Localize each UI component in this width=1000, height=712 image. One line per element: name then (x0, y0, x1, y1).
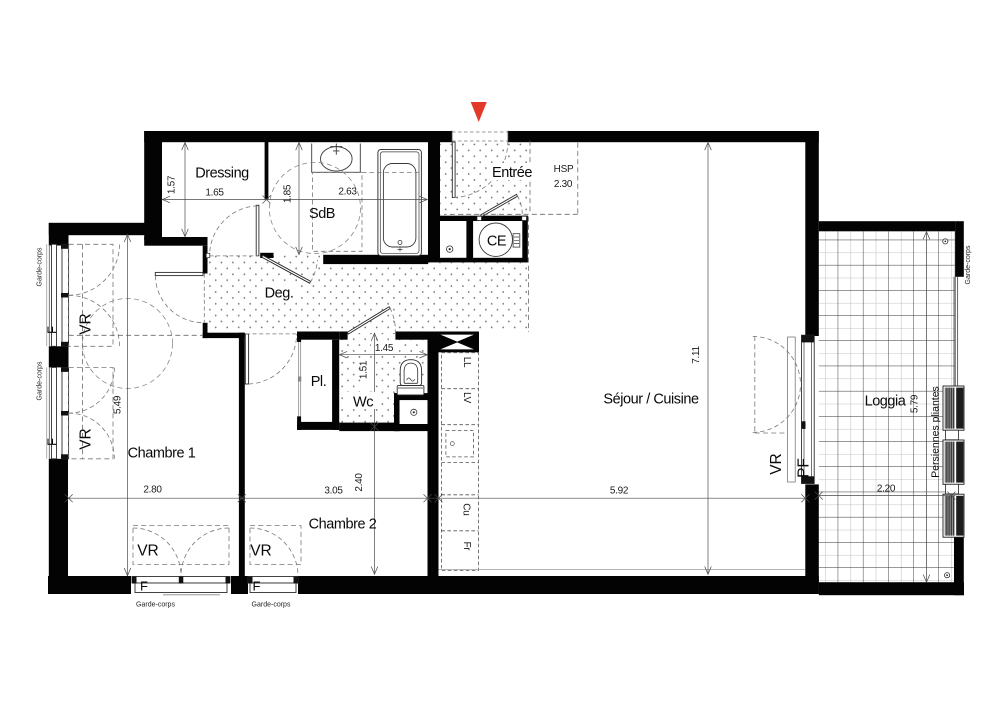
svg-text:Garde-corps: Garde-corps (37, 247, 44, 286)
svg-text:1.57: 1.57 (166, 175, 177, 194)
svg-text:Garde-corps: Garde-corps (136, 602, 175, 609)
svg-text:Garde-corps: Garde-corps (37, 361, 44, 400)
svg-text:2.20: 2.20 (877, 484, 896, 495)
svg-text:1.51: 1.51 (359, 360, 370, 379)
svg-text:Séjour / Cuisine: Séjour / Cuisine (603, 392, 699, 408)
svg-text:F: F (45, 326, 60, 334)
svg-text:Garde-corps: Garde-corps (965, 245, 972, 284)
svg-text:Entrée: Entrée (492, 165, 532, 181)
svg-text:1.45: 1.45 (375, 343, 394, 354)
svg-text:1.85: 1.85 (283, 184, 294, 203)
svg-text:7.11: 7.11 (691, 346, 702, 364)
svg-text:2.80: 2.80 (143, 485, 162, 496)
svg-text:VR: VR (250, 543, 272, 560)
svg-text:CE: CE (487, 233, 507, 249)
svg-text:Fr: Fr (461, 541, 472, 551)
svg-text:Pl.: Pl. (311, 374, 327, 390)
svg-text:5.49: 5.49 (112, 395, 123, 414)
svg-text:LL: LL (461, 357, 472, 368)
svg-text:Dressing: Dressing (195, 166, 249, 182)
svg-text:2.30: 2.30 (554, 179, 573, 190)
svg-text:Cu: Cu (460, 503, 471, 515)
svg-text:SdB: SdB (309, 206, 335, 222)
svg-text:2.40: 2.40 (354, 473, 365, 492)
svg-text:PF: PF (796, 458, 813, 478)
svg-text:Wc: Wc (353, 395, 373, 411)
svg-text:Chambre 2: Chambre 2 (309, 517, 377, 533)
svg-text:Persiennes pliantes: Persiennes pliantes (930, 386, 942, 478)
svg-text:Chambre 1: Chambre 1 (128, 446, 196, 462)
svg-text:5.79: 5.79 (910, 394, 921, 413)
svg-text:VR: VR (768, 453, 785, 475)
svg-text:VR: VR (78, 313, 95, 335)
svg-text:Deg.: Deg. (265, 286, 294, 302)
svg-text:F: F (45, 438, 60, 446)
svg-text:Loggia: Loggia (865, 394, 907, 410)
svg-text:HSP: HSP (554, 164, 574, 175)
svg-text:F: F (140, 579, 148, 594)
svg-text:VR: VR (137, 543, 159, 560)
svg-text:3.05: 3.05 (324, 486, 343, 497)
svg-text:1.65: 1.65 (205, 188, 224, 199)
svg-text:5.92: 5.92 (610, 486, 629, 497)
svg-text:Garde-corps: Garde-corps (252, 602, 291, 609)
svg-text:F: F (253, 579, 261, 594)
svg-text:LV: LV (461, 392, 472, 404)
svg-text:VR: VR (78, 428, 95, 450)
svg-text:2.63: 2.63 (338, 187, 357, 198)
